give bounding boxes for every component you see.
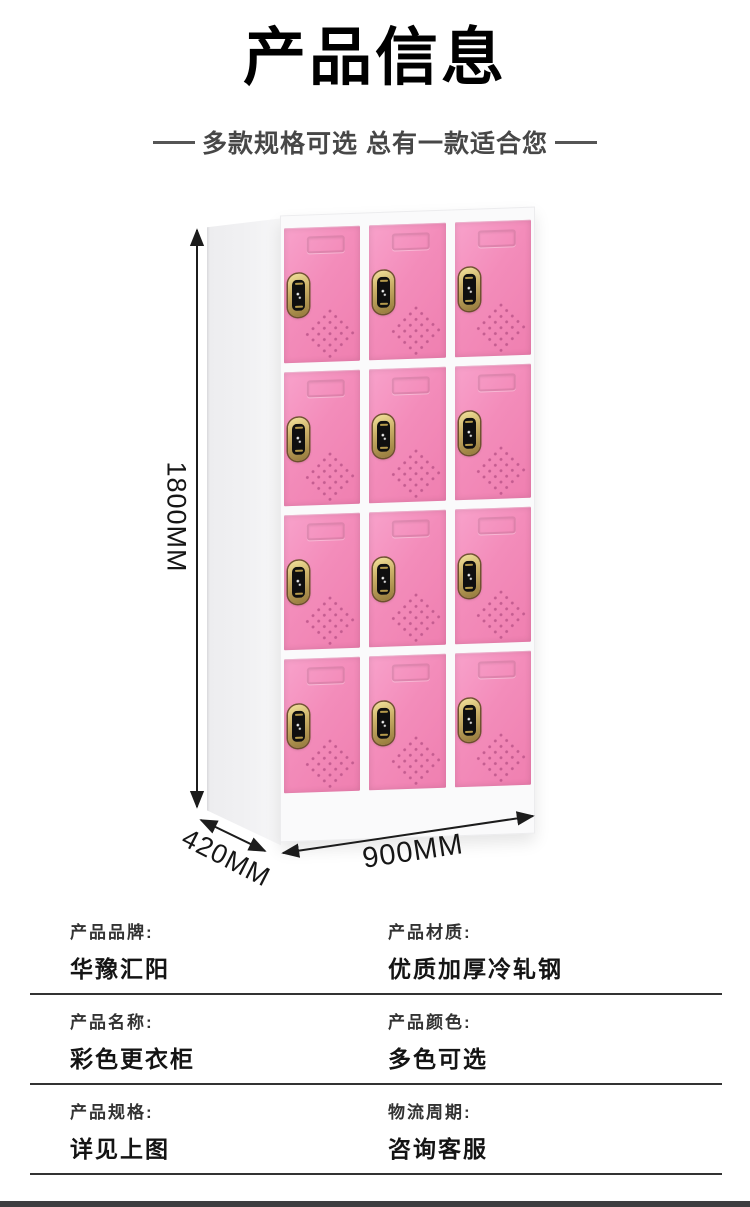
lock-screen [377,420,390,451]
lock-screen [292,710,305,741]
locker-door-grid [284,220,531,794]
door-lock [288,704,309,748]
footer-bar [0,1201,750,1207]
spec-value: 多色可选 [388,1046,722,1074]
locker-door [455,650,531,787]
door-lock [373,701,394,745]
door-handle [478,373,516,391]
locker-door [284,226,360,363]
vent-holes [387,589,444,646]
vent-holes [302,592,359,649]
spec-value: 详见上图 [70,1136,376,1164]
subtitle: 多款规格可选 总有一款适合您 [0,126,750,158]
spec-cell-logistics: 物流周期: 咨询客服 [376,1103,722,1164]
spec-label: 物流周期: [388,1103,722,1123]
door-lock [459,411,480,455]
door-handle [392,663,430,681]
door-handle [478,229,516,247]
subtitle-left-dash [153,141,195,144]
product-info-page: 产品信息 多款规格可选 总有一款适合您 [0,0,750,1207]
door-handle [307,522,345,540]
vent-holes [473,729,530,786]
spec-value: 彩色更衣柜 [70,1046,376,1074]
door-lock [459,698,480,742]
lock-screen [292,423,305,454]
spec-label: 产品材质: [388,923,722,943]
vent-holes [387,445,444,502]
locker-cabinet [160,193,600,888]
locker-door [284,656,360,793]
spec-table: 产品品牌: 华豫汇阳 产品材质: 优质加厚冷轧钢 产品名称: 彩色更衣柜 产品颜… [30,905,722,1175]
lock-screen [377,277,390,308]
subtitle-right-dash [555,141,597,144]
door-handle [392,376,430,394]
vent-holes [387,732,444,789]
lock-screen [292,567,305,598]
table-row: 产品名称: 彩色更衣柜 产品颜色: 多色可选 [30,995,722,1085]
table-row: 产品规格: 详见上图 物流周期: 咨询客服 [30,1085,722,1175]
door-lock [373,557,394,601]
spec-value: 优质加厚冷轧钢 [388,956,722,984]
spec-cell-name: 产品名称: 彩色更衣柜 [30,1013,376,1074]
lock-screen [377,564,390,595]
door-handle [478,516,516,534]
spec-cell-spec: 产品规格: 详见上图 [30,1103,376,1164]
cabinet-side-panel [207,218,281,848]
locker-door [369,223,445,360]
vent-holes [302,735,359,792]
spec-label: 产品品牌: [70,923,376,943]
door-lock [459,267,480,311]
vent-holes [387,302,444,359]
lock-screen [463,561,476,592]
locker-door [284,513,360,650]
door-handle [392,519,430,537]
spec-cell-material: 产品材质: 优质加厚冷轧钢 [376,923,722,984]
locker-door [369,510,445,647]
door-handle [392,232,430,250]
vent-holes [302,448,359,505]
spec-cell-brand: 产品品牌: 华豫汇阳 [30,923,376,984]
door-handle [478,660,516,678]
door-handle [307,666,345,684]
locker-door [455,363,531,500]
locker-door [284,369,360,506]
door-lock [373,414,394,458]
door-lock [288,560,309,604]
door-lock [288,273,309,317]
door-handle [307,235,345,253]
vent-holes [473,442,530,499]
page-title: 产品信息 [0,24,750,93]
locker-door [369,653,445,790]
door-lock [373,270,394,314]
lock-screen [463,274,476,305]
lock-screen [463,704,476,735]
spec-label: 产品名称: [70,1013,376,1033]
spec-label: 产品颜色: [388,1013,722,1033]
subtitle-text: 多款规格可选 总有一款适合您 [202,124,548,160]
vent-holes [473,586,530,643]
spec-value: 咨询客服 [388,1136,722,1164]
lock-screen [377,707,390,738]
cabinet-front-face [280,207,535,843]
lock-screen [463,417,476,448]
door-lock [459,554,480,598]
spec-value: 华豫汇阳 [70,956,376,984]
table-row: 产品品牌: 华豫汇阳 产品材质: 优质加厚冷轧钢 [30,905,722,995]
vent-holes [302,305,359,362]
spec-label: 产品规格: [70,1103,376,1123]
vent-holes [473,299,530,356]
locker-door [369,366,445,503]
lock-screen [292,280,305,311]
product-image [160,207,600,907]
locker-door [455,507,531,644]
spec-cell-color: 产品颜色: 多色可选 [376,1013,722,1074]
locker-door [455,220,531,357]
door-lock [288,417,309,461]
height-dimension-label: 1800MM [161,461,192,572]
door-handle [307,379,345,397]
